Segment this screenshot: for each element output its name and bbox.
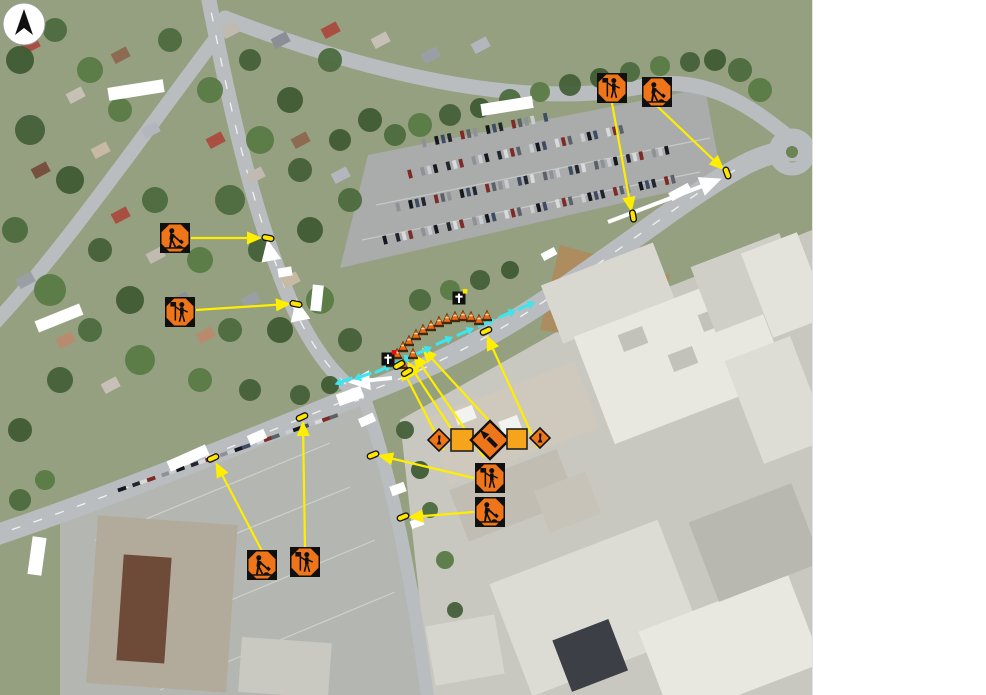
blanked-label bbox=[541, 247, 558, 261]
lane-direction-arrow-icon bbox=[516, 298, 537, 314]
blanked-label bbox=[410, 517, 425, 529]
sign-leader-line bbox=[657, 106, 722, 168]
worker-diamond-sign-icon bbox=[428, 429, 450, 451]
traffic-control-plan-page bbox=[0, 0, 986, 695]
blanked-label bbox=[336, 386, 365, 406]
flagger-ahead-sign-icon bbox=[475, 463, 505, 493]
sign-location-marker bbox=[366, 450, 379, 460]
roadwork-sign-icon bbox=[475, 497, 505, 527]
blank-side-panel bbox=[812, 0, 986, 695]
sign-leader-line bbox=[612, 103, 631, 209]
sign-leader-line bbox=[381, 456, 474, 478]
lane-direction-arrow-icon bbox=[455, 324, 476, 340]
blanked-label bbox=[107, 79, 164, 101]
traffic-cone-icon bbox=[458, 311, 468, 322]
blanked-label bbox=[167, 444, 210, 471]
roadwork-sign-icon bbox=[247, 550, 277, 580]
worker-diamond-sign-icon bbox=[530, 428, 550, 448]
roadwork-sign-icon bbox=[642, 77, 672, 107]
blanked-label bbox=[247, 429, 268, 445]
flagger-ahead-sign-icon bbox=[165, 297, 195, 327]
aerial-map bbox=[0, 0, 812, 695]
lane-direction-arrow-icon bbox=[497, 306, 518, 322]
road-direction-arrow bbox=[608, 180, 718, 222]
blank-square-sign-icon bbox=[507, 429, 527, 449]
sign-post-symbol-icon bbox=[382, 350, 397, 366]
traffic-cone-icon bbox=[466, 312, 476, 323]
sign-location-marker bbox=[262, 234, 275, 242]
lane-direction-arrow-icon bbox=[333, 374, 354, 389]
sign-leader-line bbox=[217, 465, 262, 551]
blanked-label bbox=[27, 536, 46, 576]
sign-location-marker bbox=[290, 300, 303, 308]
sign-location-marker bbox=[479, 326, 492, 336]
lane-shift-left-arrow-sign-icon bbox=[471, 421, 509, 459]
flagger-ahead-sign-icon bbox=[290, 547, 320, 577]
blanked-label bbox=[389, 482, 407, 497]
north-arrow-icon bbox=[1, 1, 47, 47]
flagger-ahead-sign-icon bbox=[597, 73, 627, 103]
sign-leader-line bbox=[196, 304, 288, 310]
traffic-plan-overlay bbox=[0, 0, 812, 695]
sign-location-marker bbox=[722, 166, 731, 179]
blanked-label bbox=[310, 284, 324, 311]
roadwork-sign-icon bbox=[160, 223, 190, 253]
blanked-label bbox=[480, 96, 533, 116]
sign-leader-line bbox=[303, 424, 305, 548]
road-direction-arrow bbox=[268, 243, 271, 259]
blanked-label bbox=[668, 183, 692, 201]
sign-location-marker bbox=[396, 512, 409, 522]
sign-leader-line bbox=[411, 512, 474, 517]
traffic-cone-icon bbox=[482, 311, 492, 322]
blanked-label bbox=[34, 303, 83, 332]
blanked-label bbox=[358, 413, 376, 428]
sign-location-marker bbox=[295, 412, 308, 422]
lane-direction-arrow-icon bbox=[434, 333, 455, 349]
traffic-cone-icon bbox=[442, 314, 452, 325]
sign-post-symbol-icon bbox=[453, 289, 468, 305]
blanked-label bbox=[277, 266, 292, 277]
